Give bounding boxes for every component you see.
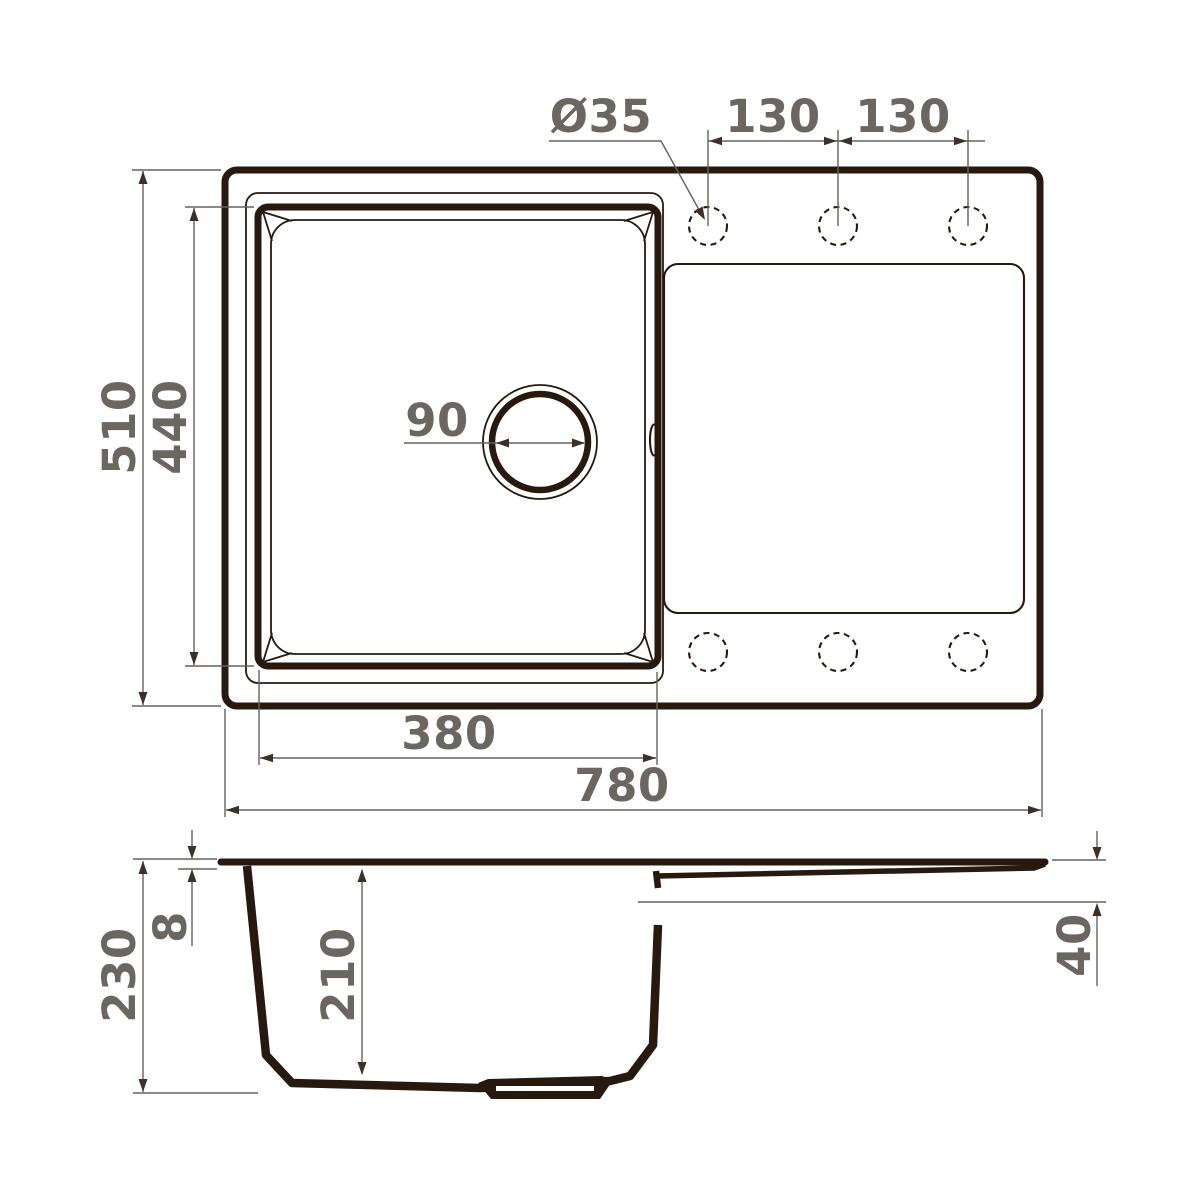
top-view <box>225 170 1040 706</box>
dim-rim-thickness: 8 <box>144 830 217 946</box>
dim-drainboard-drop: 40 <box>638 831 1106 986</box>
dim-label-overall-width: 780 <box>574 759 669 812</box>
dim-label-overall-height: 230 <box>93 927 146 1022</box>
faucet-hole-bottom-2 <box>819 633 857 671</box>
drawing-canvas: Ø35 130 130 510 440 <box>0 0 1200 1200</box>
dim-label-overall-depth: 510 <box>93 379 146 474</box>
dim-label-faucet-spacing-left: 130 <box>725 90 820 143</box>
section-drain-recess-slot <box>496 1086 594 1091</box>
dim-label-drainboard-drop: 40 <box>1048 913 1101 977</box>
dim-label-faucet-spacing-right: 130 <box>855 90 950 143</box>
section-bowl-profile <box>247 866 658 1088</box>
dim-bowl-width: 380 <box>259 670 657 765</box>
dim-faucet-spacing: 130 130 <box>708 90 985 226</box>
dim-bowl-depth: 210 <box>312 869 367 1075</box>
dim-label-drain-diameter: 90 <box>405 394 469 447</box>
drainboard-outline <box>664 264 1024 613</box>
dim-overall-height: 230 <box>93 859 258 1093</box>
sink-technical-drawing: Ø35 130 130 510 440 <box>0 0 1200 1200</box>
dim-label-rim-thickness: 8 <box>144 911 197 943</box>
dim-label-bowl-depth: 210 <box>312 927 365 1022</box>
dim-label-faucet-diameter: Ø35 <box>550 90 652 143</box>
dim-label-bowl-width: 380 <box>401 707 496 760</box>
dim-bowl-length: 440 <box>144 207 254 666</box>
section-drainboard-surface <box>657 864 1045 876</box>
dim-faucet-diameter: Ø35 <box>549 90 709 222</box>
dim-overall-width: 780 <box>225 709 1042 817</box>
sink-outer-outline <box>225 170 1040 706</box>
faucet-hole-bottom-1 <box>689 633 727 671</box>
faucet-hole-bottom-3 <box>949 633 987 671</box>
faucet-holes <box>689 207 987 671</box>
dim-label-bowl-length: 440 <box>144 379 197 474</box>
